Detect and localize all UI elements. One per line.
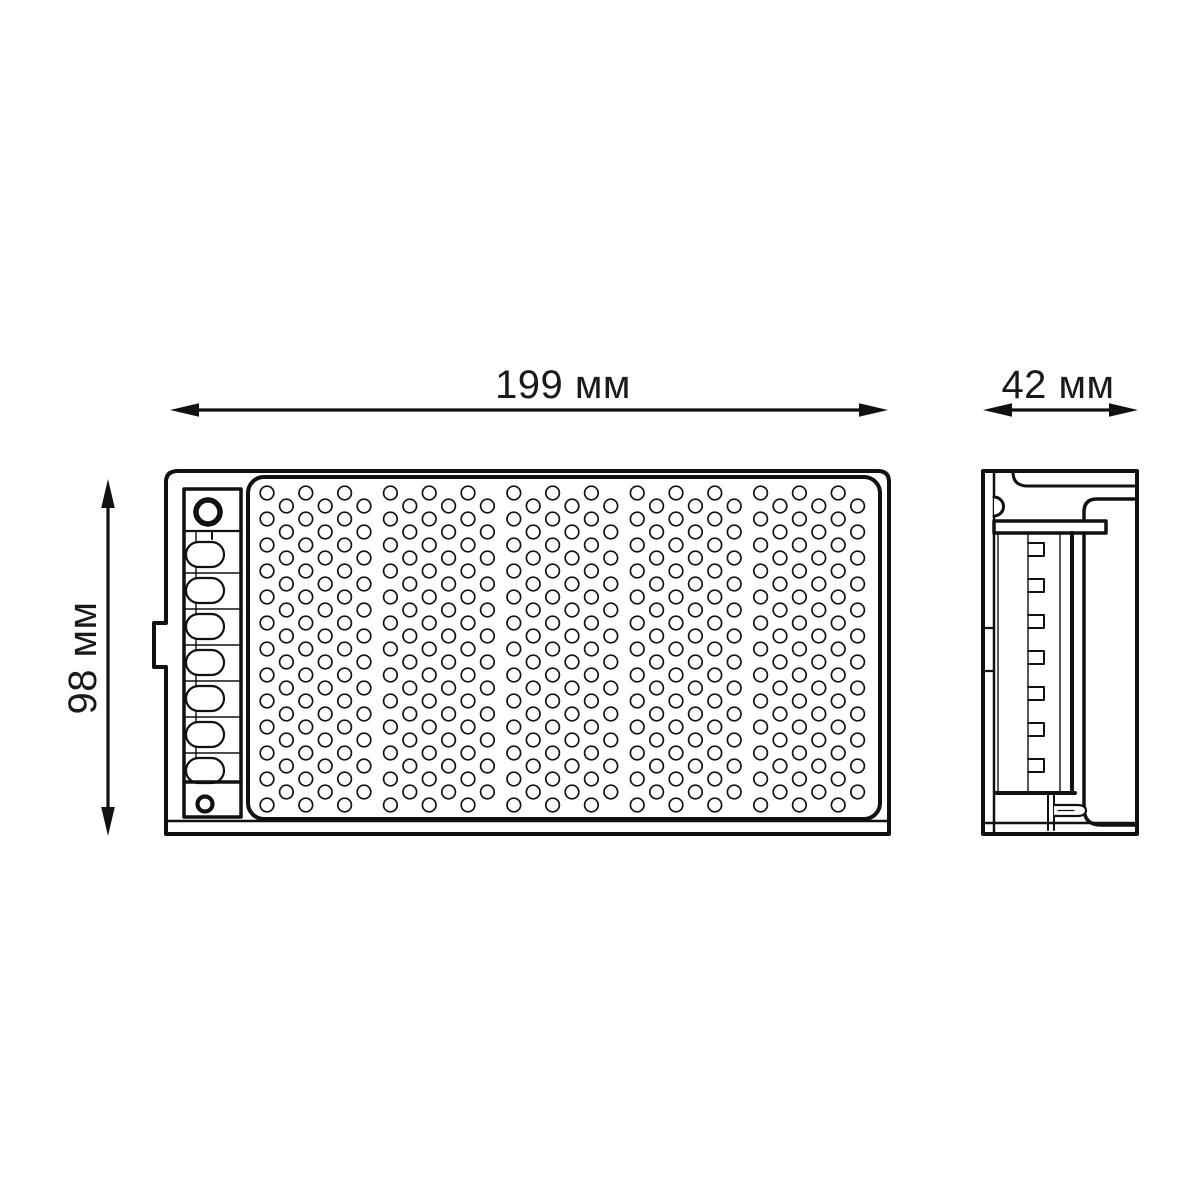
terminal-slot [186, 722, 224, 747]
terminal-slot [186, 758, 224, 783]
height-dimension: 98 мм [61, 479, 115, 836]
front-view [154, 471, 889, 834]
side-terminal-flange [994, 521, 1106, 533]
width-dimension: 199 мм [170, 363, 888, 417]
side-view [983, 471, 1137, 834]
width-arrowhead-right [859, 403, 888, 417]
dimension-drawing: 199 мм 42 мм 98 мм [0, 0, 1200, 1200]
terminal-slot [186, 578, 224, 603]
depth-dimension-label: 42 мм [1001, 363, 1114, 407]
side-screw-bump [994, 497, 1004, 516]
terminal-block [184, 489, 241, 817]
height-dimension-label: 98 мм [61, 601, 105, 714]
terminal-slot [186, 686, 224, 711]
height-arrowhead-bottom [101, 807, 115, 836]
drawing-canvas: 199 мм 42 мм 98 мм [0, 0, 1200, 1200]
terminal-slot [186, 614, 224, 639]
width-dimension-label: 199 мм [495, 363, 631, 407]
height-arrowhead-top [101, 479, 115, 508]
terminal-slot [186, 542, 224, 567]
depth-dimension: 42 мм [983, 363, 1138, 417]
width-arrowhead-left [170, 403, 199, 417]
grille-panel [248, 477, 880, 819]
terminal-slot [186, 650, 224, 675]
